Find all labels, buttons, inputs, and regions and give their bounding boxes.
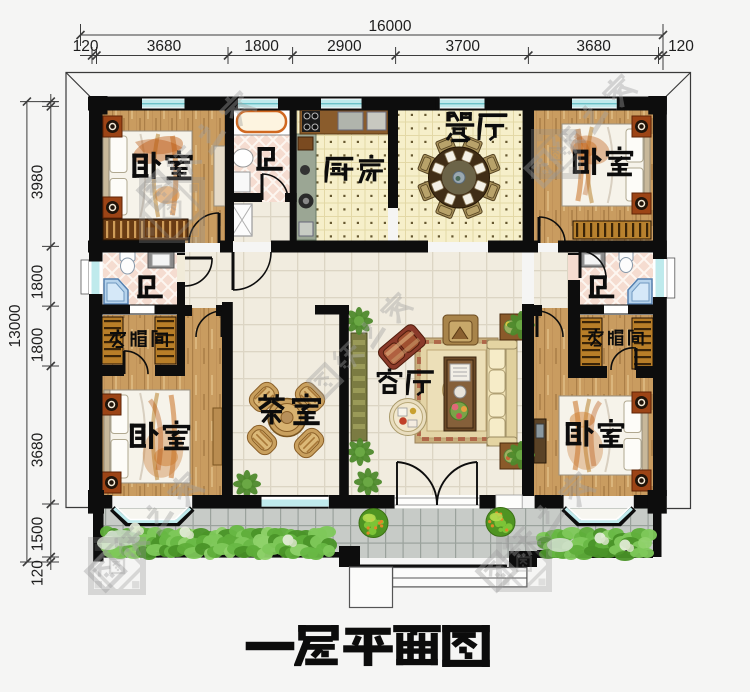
svg-text:1800: 1800 — [244, 38, 279, 55]
svg-text:3680: 3680 — [147, 38, 182, 55]
svg-text:16000: 16000 — [368, 18, 411, 35]
svg-text:3980: 3980 — [30, 164, 47, 199]
svg-text:120: 120 — [668, 38, 694, 55]
svg-text:3680: 3680 — [30, 432, 47, 467]
svg-text:3700: 3700 — [446, 38, 481, 55]
svg-text:1800: 1800 — [30, 327, 47, 362]
svg-text:3680: 3680 — [576, 38, 611, 55]
svg-text:1500: 1500 — [30, 516, 47, 551]
svg-text:120: 120 — [30, 560, 47, 586]
svg-text:2900: 2900 — [327, 38, 362, 55]
svg-text:13000: 13000 — [7, 304, 24, 347]
svg-text:120: 120 — [73, 38, 99, 55]
svg-text:1800: 1800 — [30, 264, 47, 299]
